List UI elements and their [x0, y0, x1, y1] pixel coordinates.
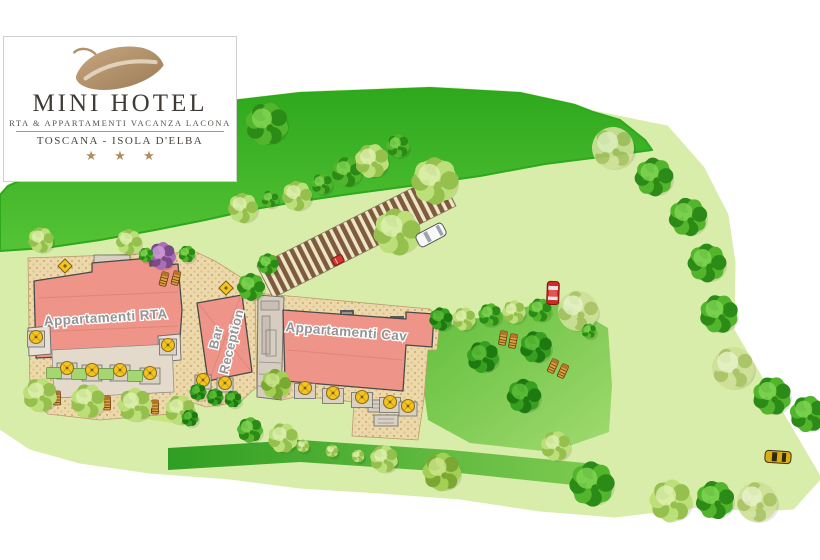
parasol — [402, 400, 415, 413]
parasol — [327, 387, 340, 400]
parasol — [384, 396, 397, 409]
parasol — [219, 377, 232, 390]
yellow-car — [765, 450, 792, 464]
parasol — [144, 367, 157, 380]
logo-divider — [16, 131, 224, 132]
tree — [790, 396, 820, 432]
hotel-location: TOSCANA - ISOLA D'ELBA — [37, 135, 203, 147]
hotel-logo: MINI HOTEL RTA & APPARTAMENTI VACANZA LA… — [3, 36, 237, 182]
leaf-icon — [71, 41, 169, 93]
hotel-name: MINI HOTEL — [32, 91, 207, 116]
red-car — [547, 281, 560, 304]
planter — [128, 371, 143, 382]
planter — [47, 368, 62, 379]
parasol — [114, 364, 127, 377]
parasol — [356, 391, 369, 404]
parasol — [61, 362, 74, 375]
planter — [99, 369, 114, 380]
tree — [411, 157, 459, 205]
parasol — [30, 331, 43, 344]
planter — [72, 369, 87, 380]
parasol — [86, 364, 99, 377]
site-map-page: Appartamenti RTA Bar Reception Appartame… — [0, 0, 820, 560]
star-rating: ★ ★ ★ — [78, 148, 161, 164]
parasol — [299, 382, 312, 395]
hotel-subtitle: RTA & APPARTAMENTI VACANZA LACONA — [9, 118, 231, 128]
parasol — [162, 339, 175, 352]
